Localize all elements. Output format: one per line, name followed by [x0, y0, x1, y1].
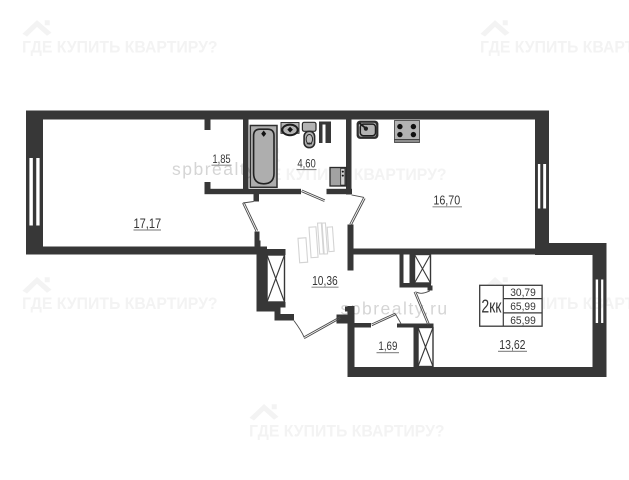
svg-text:ГДЕ КУПИТЬ КВАРТИРУ?: ГДЕ КУПИТЬ КВАРТИРУ?: [22, 295, 218, 314]
svg-text:65,99: 65,99: [510, 301, 536, 313]
svg-text:1,85: 1,85: [212, 153, 230, 166]
svg-text:1,69: 1,69: [378, 340, 397, 353]
svg-text:2кк: 2кк: [481, 297, 502, 317]
svg-text:30,79: 30,79: [510, 287, 536, 299]
svg-text:ГДЕ КУПИТЬ КВАРТИРУ?: ГДЕ КУПИТЬ КВАРТИРУ?: [22, 38, 218, 57]
svg-text:ГДЕ КУПИТЬ КВАРТИРУ?: ГДЕ КУПИТЬ КВАРТИРУ?: [480, 38, 629, 57]
svg-text:ГДЕ КУПИТЬ КВАРТИРУ?: ГДЕ КУПИТЬ КВАРТИРУ?: [249, 422, 445, 441]
svg-text:16,70: 16,70: [433, 193, 460, 208]
svg-text:10,36: 10,36: [312, 275, 338, 288]
svg-text:65,99: 65,99: [510, 314, 536, 326]
svg-text:13,62: 13,62: [499, 338, 525, 352]
svg-text:4,60: 4,60: [297, 157, 315, 170]
svg-text:17,17: 17,17: [133, 216, 161, 231]
